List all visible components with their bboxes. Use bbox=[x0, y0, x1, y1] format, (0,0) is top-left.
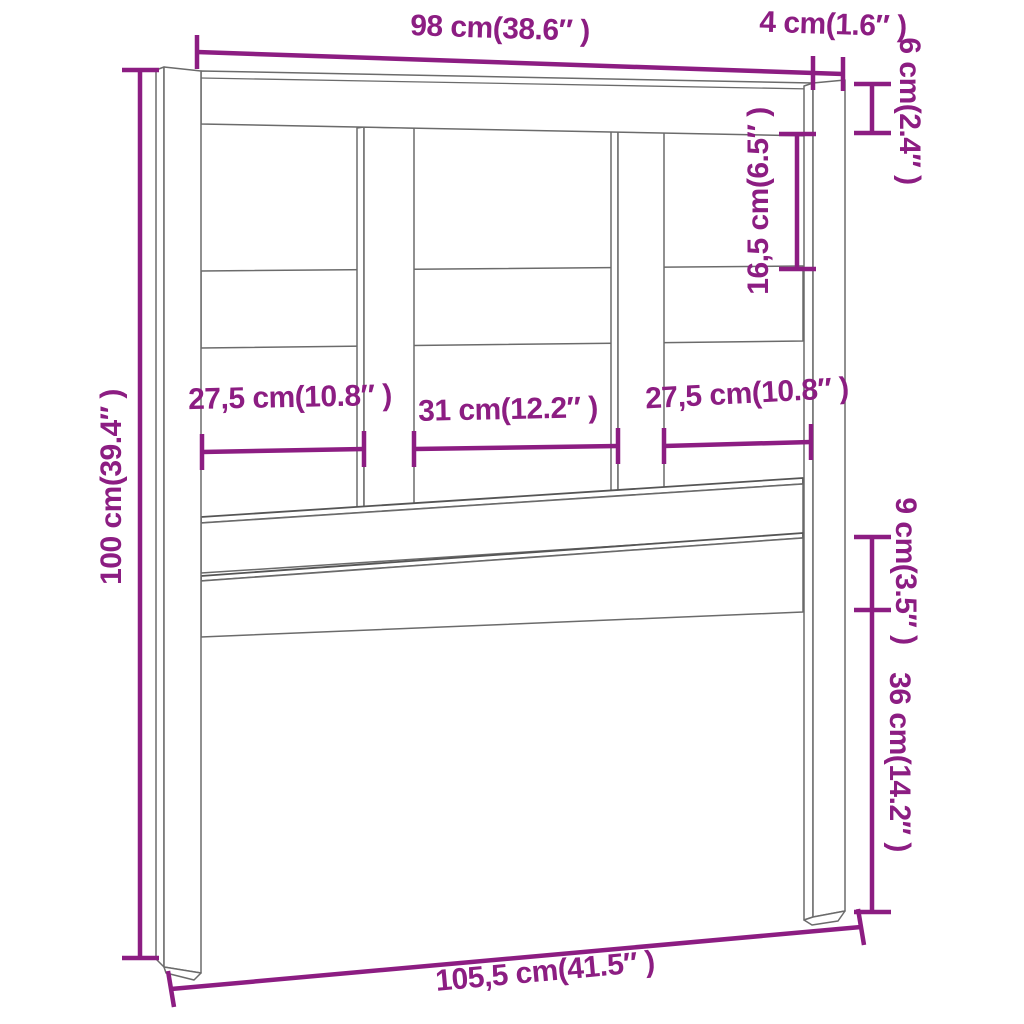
top-rail bbox=[201, 71, 813, 136]
headboard-line-drawing bbox=[0, 0, 1024, 1024]
dim-label-post-width: 4 cm(1.6″ ) bbox=[759, 8, 907, 43]
dim-label-total-height: 100 cm(39.4″ ) bbox=[97, 389, 127, 585]
dim-line-top-rail-height bbox=[854, 84, 891, 133]
dim-line-left-opening bbox=[202, 431, 364, 470]
dim-label-leg-height: 36 cm(14.2″ ) bbox=[884, 672, 914, 852]
right-post bbox=[804, 80, 845, 925]
dim-label-top-rail-height: 6 cm(2.4″ ) bbox=[894, 37, 924, 184]
dim-label-top-width: 98 cm(38.6″ ) bbox=[410, 11, 590, 47]
dim-label-left-opening-width: 27,5 cm(10.8″ ) bbox=[188, 381, 392, 415]
dim-label-upper-opening-height: 16,5 cm(6.5″ ) bbox=[744, 107, 774, 294]
dim-line-center-opening bbox=[414, 428, 618, 467]
left-post bbox=[156, 67, 201, 980]
dim-label-lower-board-height: 9 cm(3.5″ ) bbox=[890, 497, 920, 644]
dimension-diagram: 98 cm(38.6″ ) 4 cm(1.6″ ) 6 cm(2.4″ ) 16… bbox=[0, 0, 1024, 1024]
dim-line-right-opening bbox=[664, 424, 811, 464]
dim-label-center-opening-width: 31 cm(12.2″ ) bbox=[418, 393, 598, 427]
middle-rail bbox=[201, 266, 803, 348]
